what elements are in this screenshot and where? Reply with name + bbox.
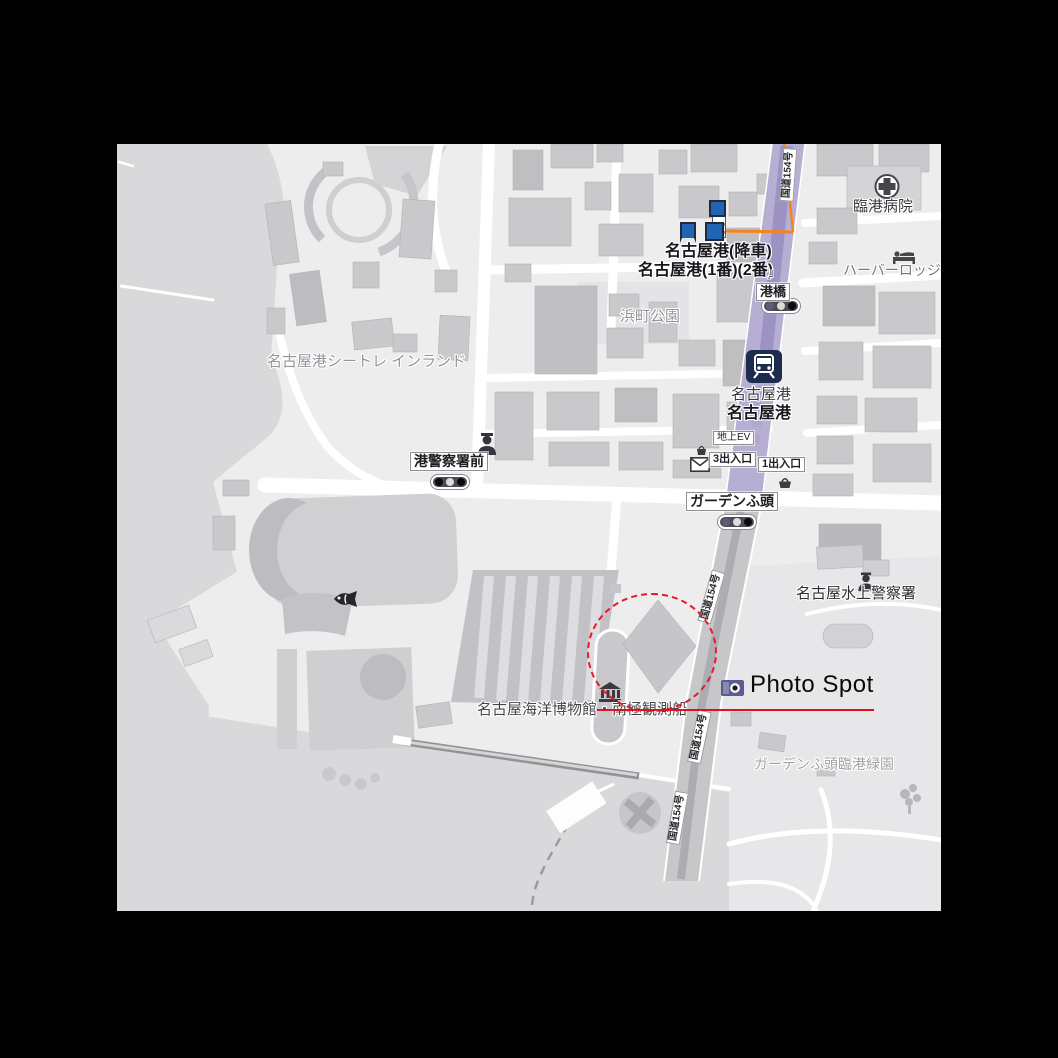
police-stop-label: 港警察署前	[410, 452, 488, 471]
garden-green-park-label: ガーデンふ頭臨港緑園	[754, 757, 894, 772]
seatrainland-label: 名古屋港シートレ インランド	[267, 354, 466, 371]
exit1-label: 1出入口	[758, 457, 805, 472]
hospital-label: 臨港病院	[853, 199, 913, 216]
ground-ev-label: 地上EV	[713, 431, 754, 445]
map-canvas[interactable]: 名古屋港(降車) 名古屋港(1番)(2番) 」 港橋 臨港病院 ハーバーロッジな…	[117, 144, 941, 911]
traffic-light-icon-garden-pier	[718, 515, 756, 529]
bracket-mark: 」	[769, 268, 779, 279]
hamacho-park-label: 浜町公園	[620, 309, 680, 326]
minato-bridge-label: 港橋	[756, 283, 790, 301]
lodge-label: ハーバーロッジな	[843, 263, 941, 278]
traffic-light-icon-minatobashi	[762, 299, 800, 313]
camera-icon[interactable]	[721, 680, 744, 696]
photo-spot-ellipse-annotation	[587, 593, 717, 712]
bus-stop-icon-1[interactable]	[709, 200, 726, 217]
photo-spot-label: Photo Spot	[750, 671, 874, 699]
bus-stop-label-dropoff: 名古屋港(降車)	[665, 243, 772, 261]
station-name-label: 名古屋港	[731, 387, 791, 404]
bus-stop-label-platforms: 名古屋港(1番)(2番)	[638, 262, 773, 280]
screenshot-stage: 名古屋港(降車) 名古屋港(1番)(2番) 」 港橋 臨港病院 ハーバーロッジな…	[0, 0, 1058, 1058]
traffic-light-icon-police-stop	[431, 475, 469, 489]
garden-pier-label: ガーデンふ頭	[686, 492, 778, 511]
subway-station-icon[interactable]	[746, 350, 782, 383]
photo-spot-underline-annotation	[597, 709, 874, 711]
water-police-label: 名古屋水上警察署	[796, 586, 916, 603]
exit3-label: 3出入口	[709, 452, 756, 467]
station-name-bold-label: 名古屋港	[727, 405, 791, 423]
map-geometry	[117, 144, 941, 911]
bus-stop-icon-2[interactable]	[680, 222, 696, 243]
bus-stop-icon-3[interactable]	[705, 222, 724, 241]
